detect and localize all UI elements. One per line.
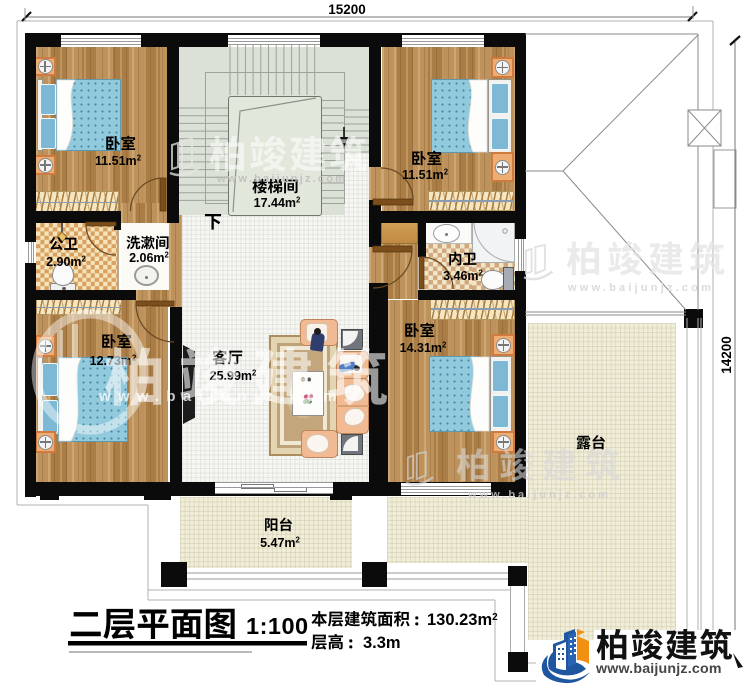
svg-text:14200: 14200 xyxy=(719,336,734,374)
svg-text:15200: 15200 xyxy=(328,2,366,17)
svg-text:3.3m: 3.3m xyxy=(363,634,401,652)
svg-text:www.baijunjz.com: www.baijunjz.com xyxy=(595,661,722,677)
svg-text:130.23m2: 130.23m2 xyxy=(427,611,498,629)
svg-text:11.51m2: 11.51m2 xyxy=(402,168,449,182)
svg-text:2.90m2: 2.90m2 xyxy=(46,255,86,269)
svg-text:3.46m2: 3.46m2 xyxy=(443,269,483,283)
svg-text:14.31m2: 14.31m2 xyxy=(400,341,447,355)
svg-text:2.06m2: 2.06m2 xyxy=(129,251,169,265)
svg-text:www.baijunjz.com: www.baijunjz.com xyxy=(216,173,347,185)
svg-text:www.baijunjz.com: www.baijunjz.com xyxy=(467,489,611,501)
svg-text:www.baijunjz.com: www.baijunjz.com xyxy=(567,282,714,294)
svg-text:17.44m2: 17.44m2 xyxy=(254,196,301,210)
svg-text:5.47m2: 5.47m2 xyxy=(260,536,300,550)
svg-text:1:100: 1:100 xyxy=(246,613,309,639)
svg-text:11.51m2: 11.51m2 xyxy=(95,154,142,168)
svg-text:www.baijunjz.com: www.baijunjz.com xyxy=(98,388,344,405)
